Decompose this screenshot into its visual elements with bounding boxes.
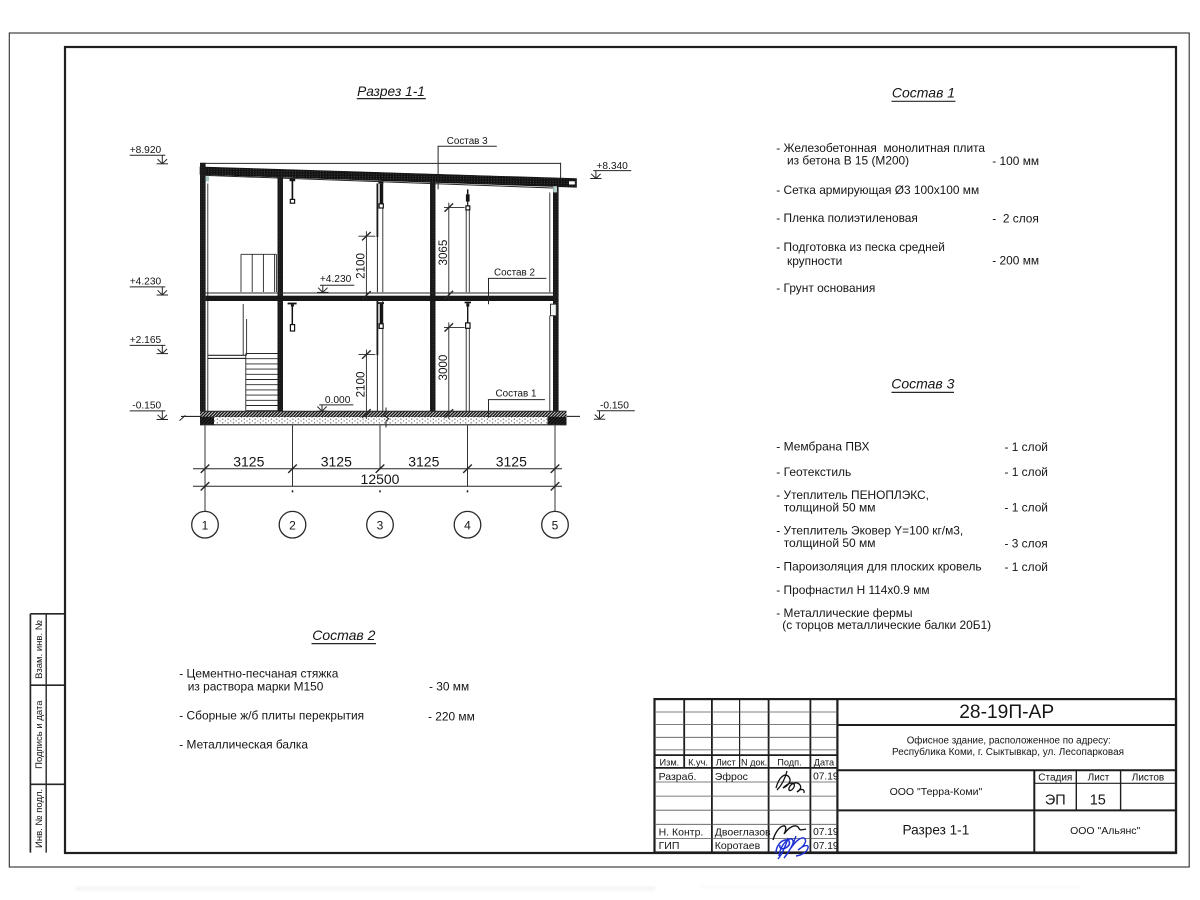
svg-text:07.19: 07.19 — [813, 772, 839, 783]
svg-text:07.19: 07.19 — [813, 841, 839, 852]
svg-text:- 220 мм: - 220 мм — [428, 710, 475, 724]
svg-text:ЭП: ЭП — [1045, 793, 1066, 809]
svg-text:2: 2 — [289, 519, 296, 533]
svg-text:- Грунт основания: - Грунт основания — [776, 281, 875, 295]
svg-text:ООО "Терра-Коми": ООО "Терра-Коми" — [890, 786, 983, 798]
svg-text:3065: 3065 — [437, 240, 450, 266]
svg-text:Разраб.: Разраб. — [659, 771, 697, 783]
svg-text:28-19П-АР: 28-19П-АР — [959, 702, 1054, 723]
svg-text:- 1 слой: - 1 слой — [1005, 501, 1048, 515]
svg-text:из бетона В 15 (М200): из бетона В 15 (М200) — [787, 154, 909, 168]
svg-text:ГИП: ГИП — [659, 840, 680, 852]
svg-text:- 3 слоя: - 3 слоя — [1005, 537, 1048, 551]
svg-text:N док.: N док. — [741, 757, 767, 767]
svg-text:0.000: 0.000 — [325, 395, 351, 406]
svg-text:(с торцов металлические балки: (с торцов металлические балки 20Б1) — [782, 618, 991, 632]
svg-text:+4.230: +4.230 — [320, 274, 352, 285]
svg-text:толщиной 50 мм: толщиной 50 мм — [784, 500, 876, 514]
svg-text:- Геотекстиль: - Геотекстиль — [776, 465, 851, 479]
svg-text:К.уч.: К.уч. — [688, 757, 708, 767]
svg-text:- Металлическая балка: - Металлическая балка — [179, 738, 308, 752]
svg-text:- Сетка армирующая Ø3 100х100: - Сетка армирующая Ø3 100х100 мм — [776, 183, 979, 197]
svg-text:Коротаев: Коротаев — [715, 840, 761, 852]
svg-text:Разрез 1-1: Разрез 1-1 — [903, 823, 970, 838]
svg-text:15: 15 — [1090, 793, 1106, 809]
svg-text:4: 4 — [464, 519, 471, 533]
svg-text:Состав 1: Состав 1 — [496, 389, 537, 400]
svg-text:Состав 1: Состав 1 — [892, 85, 955, 101]
svg-text:Состав 3: Состав 3 — [447, 136, 488, 147]
svg-text:+4.230: +4.230 — [130, 277, 162, 288]
svg-text:Подп.: Подп. — [777, 757, 801, 767]
svg-text:Стадия: Стадия — [1038, 773, 1072, 784]
svg-text:Разрез 1-1: Разрез 1-1 — [357, 84, 425, 99]
svg-text:-0.150: -0.150 — [600, 400, 629, 411]
svg-text:- 200 мм: - 200 мм — [992, 253, 1039, 267]
svg-text:Состав 2: Состав 2 — [494, 268, 535, 279]
svg-text:толщиной 50 мм: толщиной 50 мм — [784, 536, 876, 550]
svg-text:-0.150: -0.150 — [132, 401, 161, 412]
svg-text:- Пленка полиэтиленовая: - Пленка полиэтиленовая — [776, 211, 918, 225]
svg-text:Листов: Листов — [1132, 773, 1165, 784]
svg-text:- 100 мм: - 100 мм — [992, 154, 1039, 168]
svg-text:Дата: Дата — [814, 757, 835, 767]
svg-text:ООО "Альянс": ООО "Альянс" — [1070, 825, 1140, 837]
svg-text:крупности: крупности — [787, 254, 842, 268]
svg-text:- Мембрана ПВХ: - Мембрана ПВХ — [776, 440, 869, 454]
svg-text:- 1 слой: - 1 слой — [1005, 440, 1048, 454]
svg-text:+8.920: +8.920 — [130, 145, 162, 156]
svg-text:2100: 2100 — [355, 372, 368, 398]
svg-text:Эфрос: Эфрос — [715, 771, 748, 783]
svg-text:Взам. инв. №: Взам. инв. № — [34, 620, 45, 679]
svg-text:Подпись и дата: Подпись и дата — [34, 700, 45, 769]
svg-text:Состав 2: Состав 2 — [312, 627, 375, 643]
svg-text:Инв. № подл.: Инв. № подл. — [34, 789, 45, 848]
svg-text:- 1 слой: - 1 слой — [1005, 560, 1048, 574]
svg-text:Лист: Лист — [1088, 773, 1110, 784]
svg-text:Офисное здание, расположенное: Офисное здание, расположенное по адресу: — [907, 735, 1111, 747]
svg-text:Изм.: Изм. — [660, 757, 680, 767]
svg-text:3125: 3125 — [321, 453, 352, 469]
svg-text:3125: 3125 — [408, 453, 439, 469]
svg-text:из раствора марки М150: из раствора марки М150 — [188, 680, 324, 694]
svg-text:Н. Контр.: Н. Контр. — [659, 826, 704, 838]
svg-text:1: 1 — [202, 519, 209, 533]
svg-text:- Цементно-песчаная стяжка: - Цементно-песчаная стяжка — [179, 667, 338, 681]
svg-text:Двоеглазов: Двоеглазов — [715, 826, 771, 838]
svg-text:- Профнастил Н 114х0.9 мм: - Профнастил Н 114х0.9 мм — [776, 583, 929, 597]
svg-text:- Подготовка из песка средней: - Подготовка из песка средней — [776, 240, 945, 254]
svg-text:2100: 2100 — [355, 253, 368, 279]
svg-text:Состав 3: Состав 3 — [891, 375, 954, 391]
svg-text:- 1 слой: - 1 слой — [1005, 465, 1048, 479]
svg-text:- 2 слоя: - 2 слоя — [992, 211, 1039, 225]
svg-text:- 30 мм: - 30 мм — [429, 680, 469, 694]
svg-text:5: 5 — [552, 519, 559, 533]
svg-text:3000: 3000 — [437, 355, 450, 381]
svg-text:Лист: Лист — [716, 757, 737, 767]
svg-text:12500: 12500 — [361, 471, 400, 487]
svg-text:- Сборные ж/б плиты перекрытия: - Сборные ж/б плиты перекрытия — [179, 709, 364, 723]
svg-text:3125: 3125 — [496, 453, 527, 469]
svg-text:- Пароизоляция для плоских кро: - Пароизоляция для плоских кровель — [776, 560, 981, 574]
svg-text:3125: 3125 — [233, 453, 264, 469]
svg-text:3: 3 — [377, 519, 384, 533]
svg-text:+2.165: +2.165 — [130, 335, 162, 346]
svg-text:Республика Коми, г. Сыктывкар,: Республика Коми, г. Сыктывкар, ул. Лесоп… — [892, 746, 1124, 758]
svg-text:07.19: 07.19 — [813, 827, 839, 838]
